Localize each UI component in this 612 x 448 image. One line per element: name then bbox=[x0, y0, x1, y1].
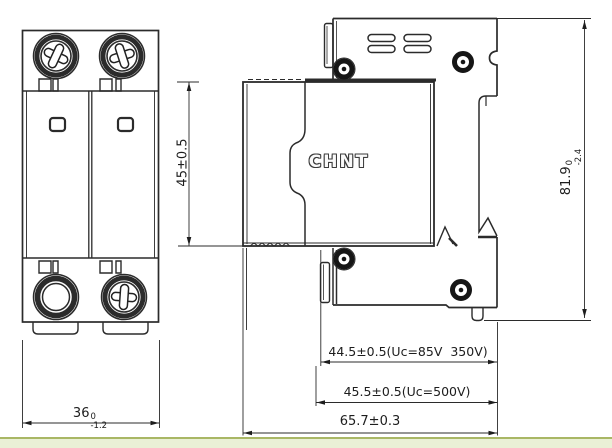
dimension-drawing: 45±0.5 81.90-2.4 360-1.2 44.5±0.5(Uc=85V… bbox=[0, 0, 612, 448]
clip-spring-detail bbox=[437, 227, 453, 246]
drawing-linework bbox=[0, 0, 612, 448]
screw-head-top-right bbox=[100, 34, 145, 79]
tolerance-stack: 0-1.2 bbox=[90, 413, 107, 430]
dim-depth-85v-lines bbox=[321, 250, 498, 436]
indicator-window-right bbox=[118, 118, 133, 131]
brand-logo: CHNT bbox=[300, 152, 378, 172]
cover-screw-top-left bbox=[333, 58, 355, 80]
side-top-cover bbox=[248, 19, 591, 81]
module-divider bbox=[89, 91, 92, 258]
screw-head-top-left bbox=[34, 34, 79, 79]
dim-depth-85v-label: 44.5±0.5(Uc=85V 350V) bbox=[318, 344, 498, 359]
terminal-clamp-tabs-top bbox=[39, 79, 121, 91]
dim-front-height-label: 45±0.5 bbox=[176, 123, 191, 203]
cover-screw-top-right bbox=[455, 54, 472, 71]
cover-screw-bottom-left bbox=[333, 248, 355, 270]
cover-screw-bottom-right bbox=[453, 282, 470, 299]
tolerance-stack: 0-2.4 bbox=[566, 149, 583, 166]
dim-depth-total-lines bbox=[243, 248, 498, 436]
screw-head-bottom-right bbox=[102, 275, 147, 320]
terminal-clamp-tabs-bottom bbox=[39, 261, 121, 273]
rail-latch bbox=[478, 216, 497, 237]
front-view bbox=[23, 31, 159, 335]
dim-side-height-label: 81.90-2.4 bbox=[559, 124, 583, 220]
dim-front-width-label: 360-1.2 bbox=[50, 406, 130, 430]
side-bottom-cover bbox=[321, 248, 470, 305]
dim-depth-total-label: 65.7±0.3 bbox=[300, 414, 440, 429]
vent-slots bbox=[368, 35, 431, 53]
screw-hole-bottom-left bbox=[34, 275, 79, 320]
indicator-window-left bbox=[50, 118, 65, 131]
side-view bbox=[243, 19, 591, 321]
page-footer-strip bbox=[0, 437, 612, 448]
dim-depth-500v-label: 45.5±0.5(Uc=500V) bbox=[316, 384, 498, 399]
mounting-feet bbox=[33, 322, 148, 334]
rail-foot-tab bbox=[472, 308, 483, 321]
